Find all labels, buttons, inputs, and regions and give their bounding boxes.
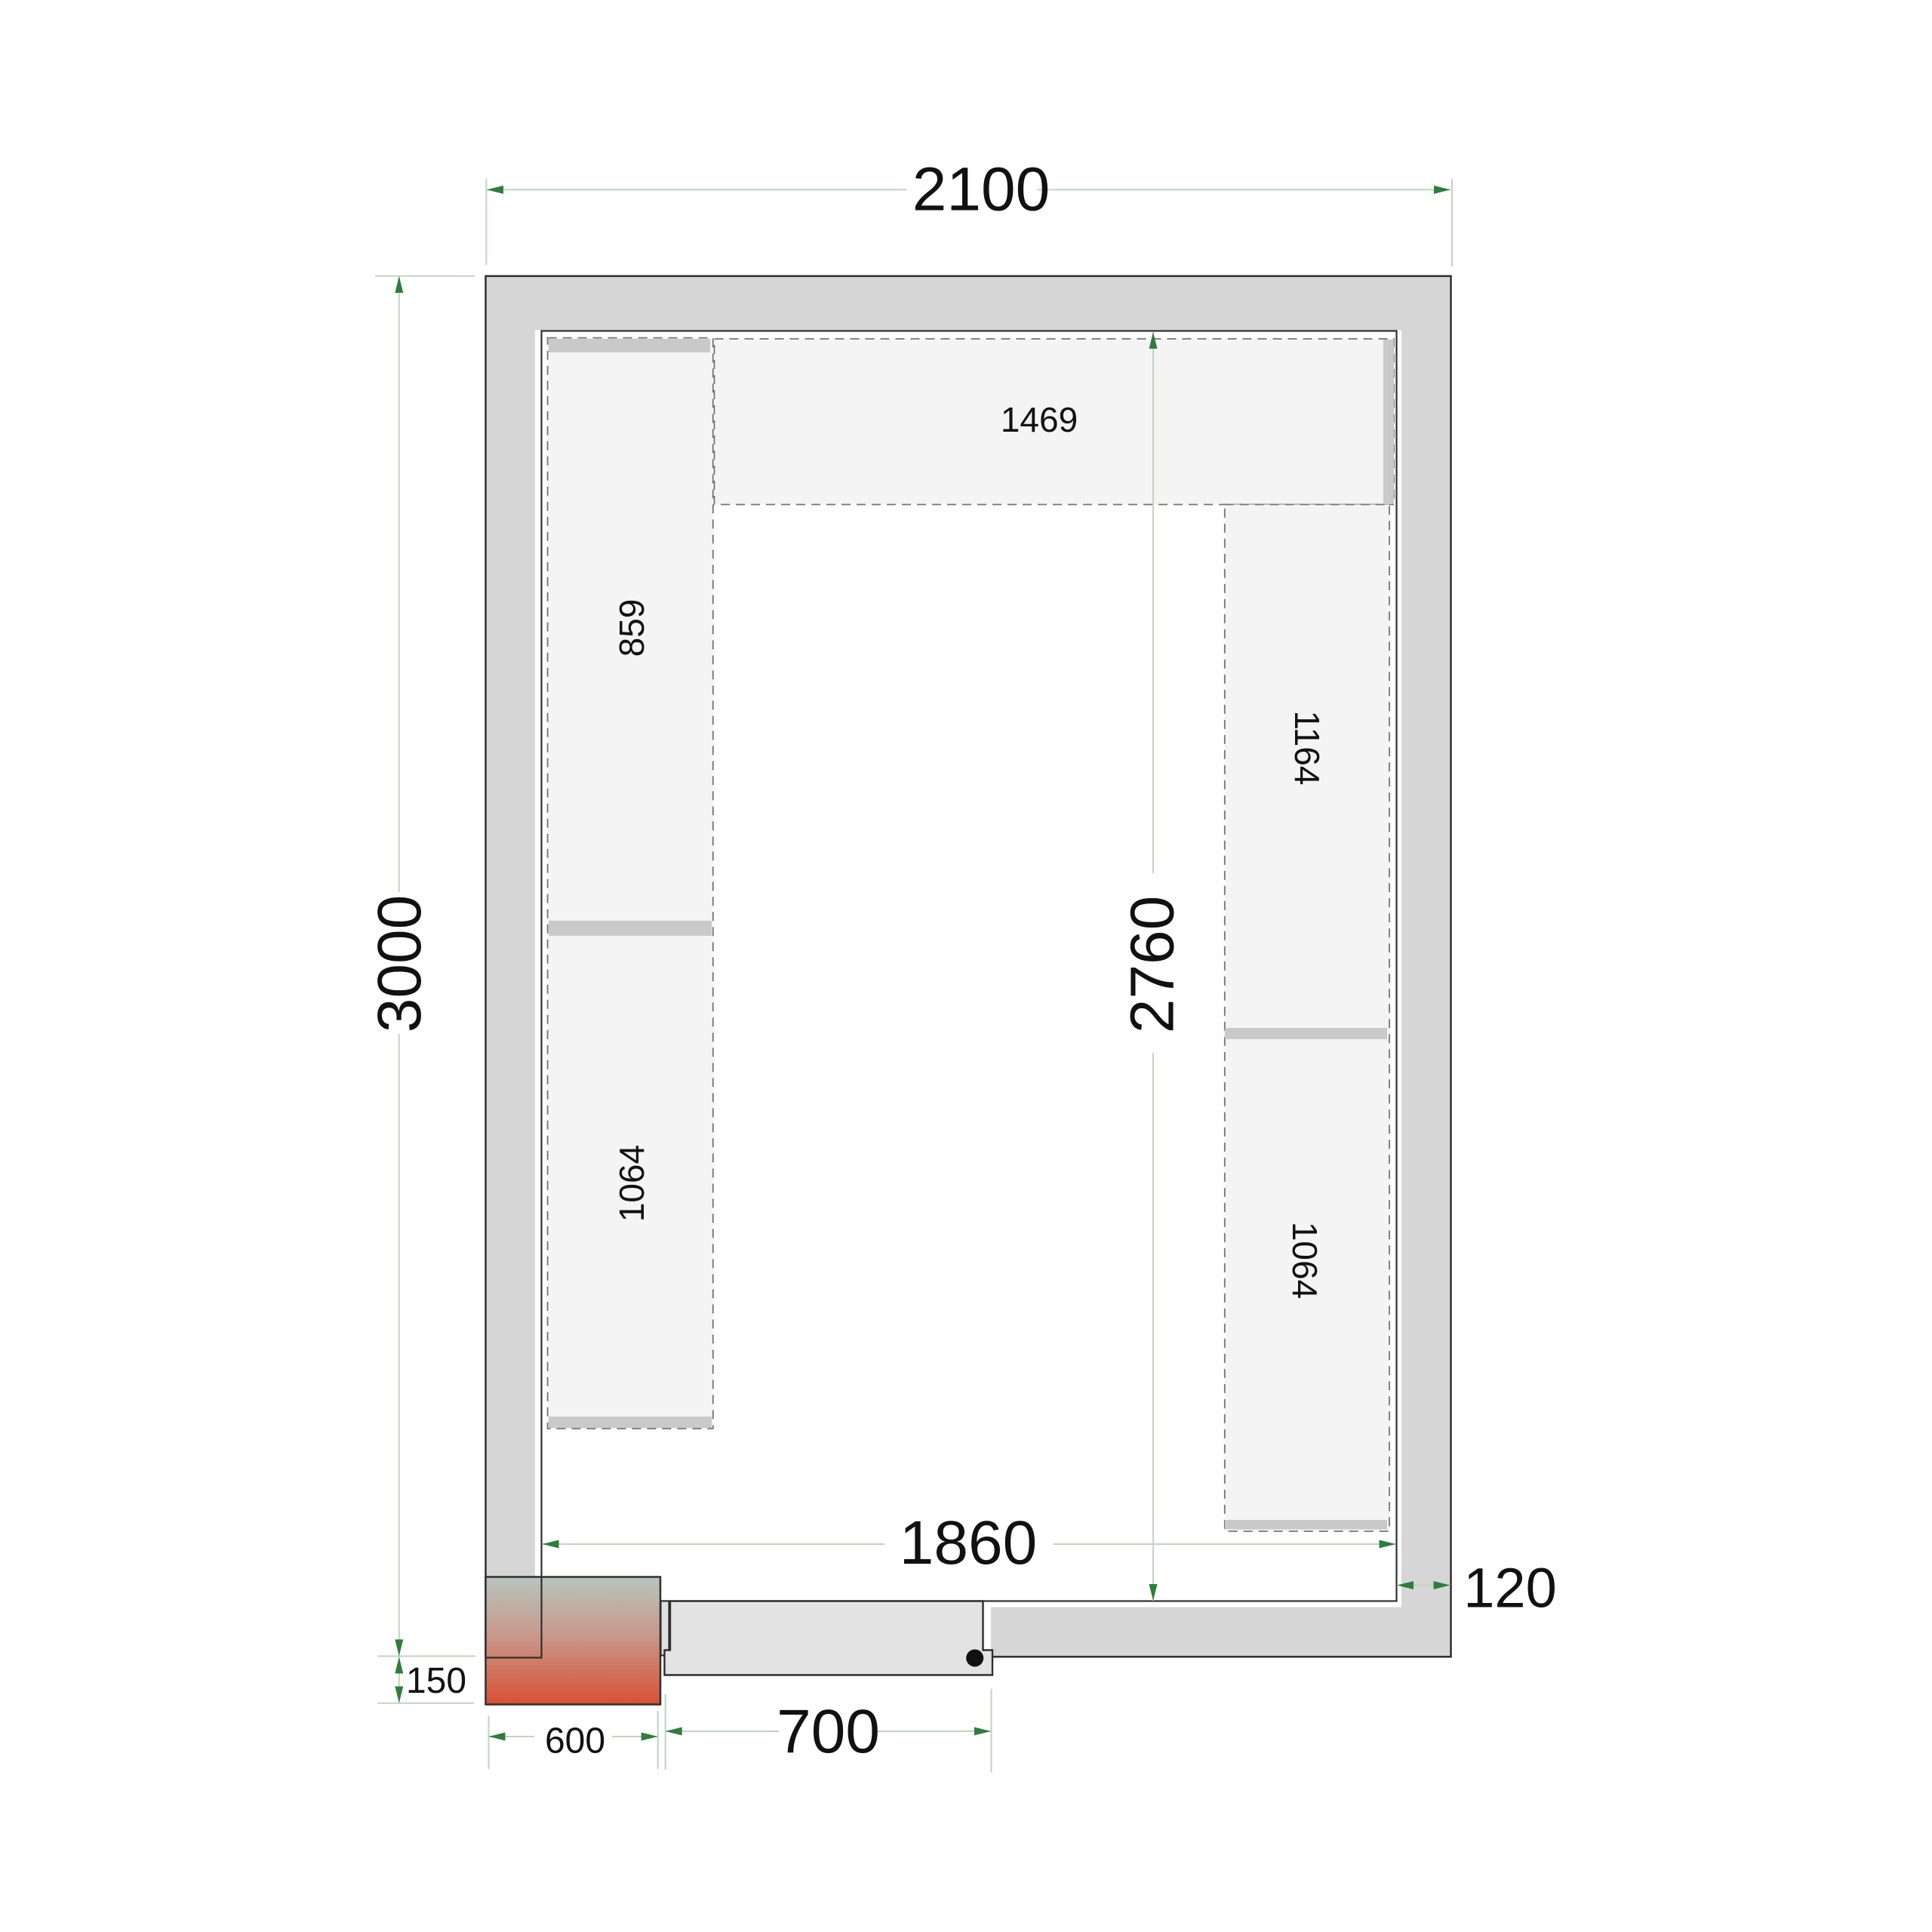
svg-text:1860: 1860 — [900, 1509, 1037, 1577]
svg-text:120: 120 — [1463, 1557, 1556, 1620]
svg-text:1064: 1064 — [612, 1145, 651, 1222]
svg-text:1164: 1164 — [1287, 711, 1327, 786]
svg-text:700: 700 — [777, 1697, 880, 1766]
svg-text:600: 600 — [545, 1721, 605, 1761]
svg-text:2100: 2100 — [912, 155, 1050, 224]
svg-text:2760: 2760 — [1118, 896, 1187, 1033]
svg-text:3000: 3000 — [365, 895, 434, 1032]
svg-text:1469: 1469 — [1001, 400, 1078, 439]
svg-text:1064: 1064 — [1285, 1222, 1324, 1299]
svg-text:859: 859 — [612, 599, 651, 657]
svg-text:150: 150 — [406, 1661, 466, 1701]
